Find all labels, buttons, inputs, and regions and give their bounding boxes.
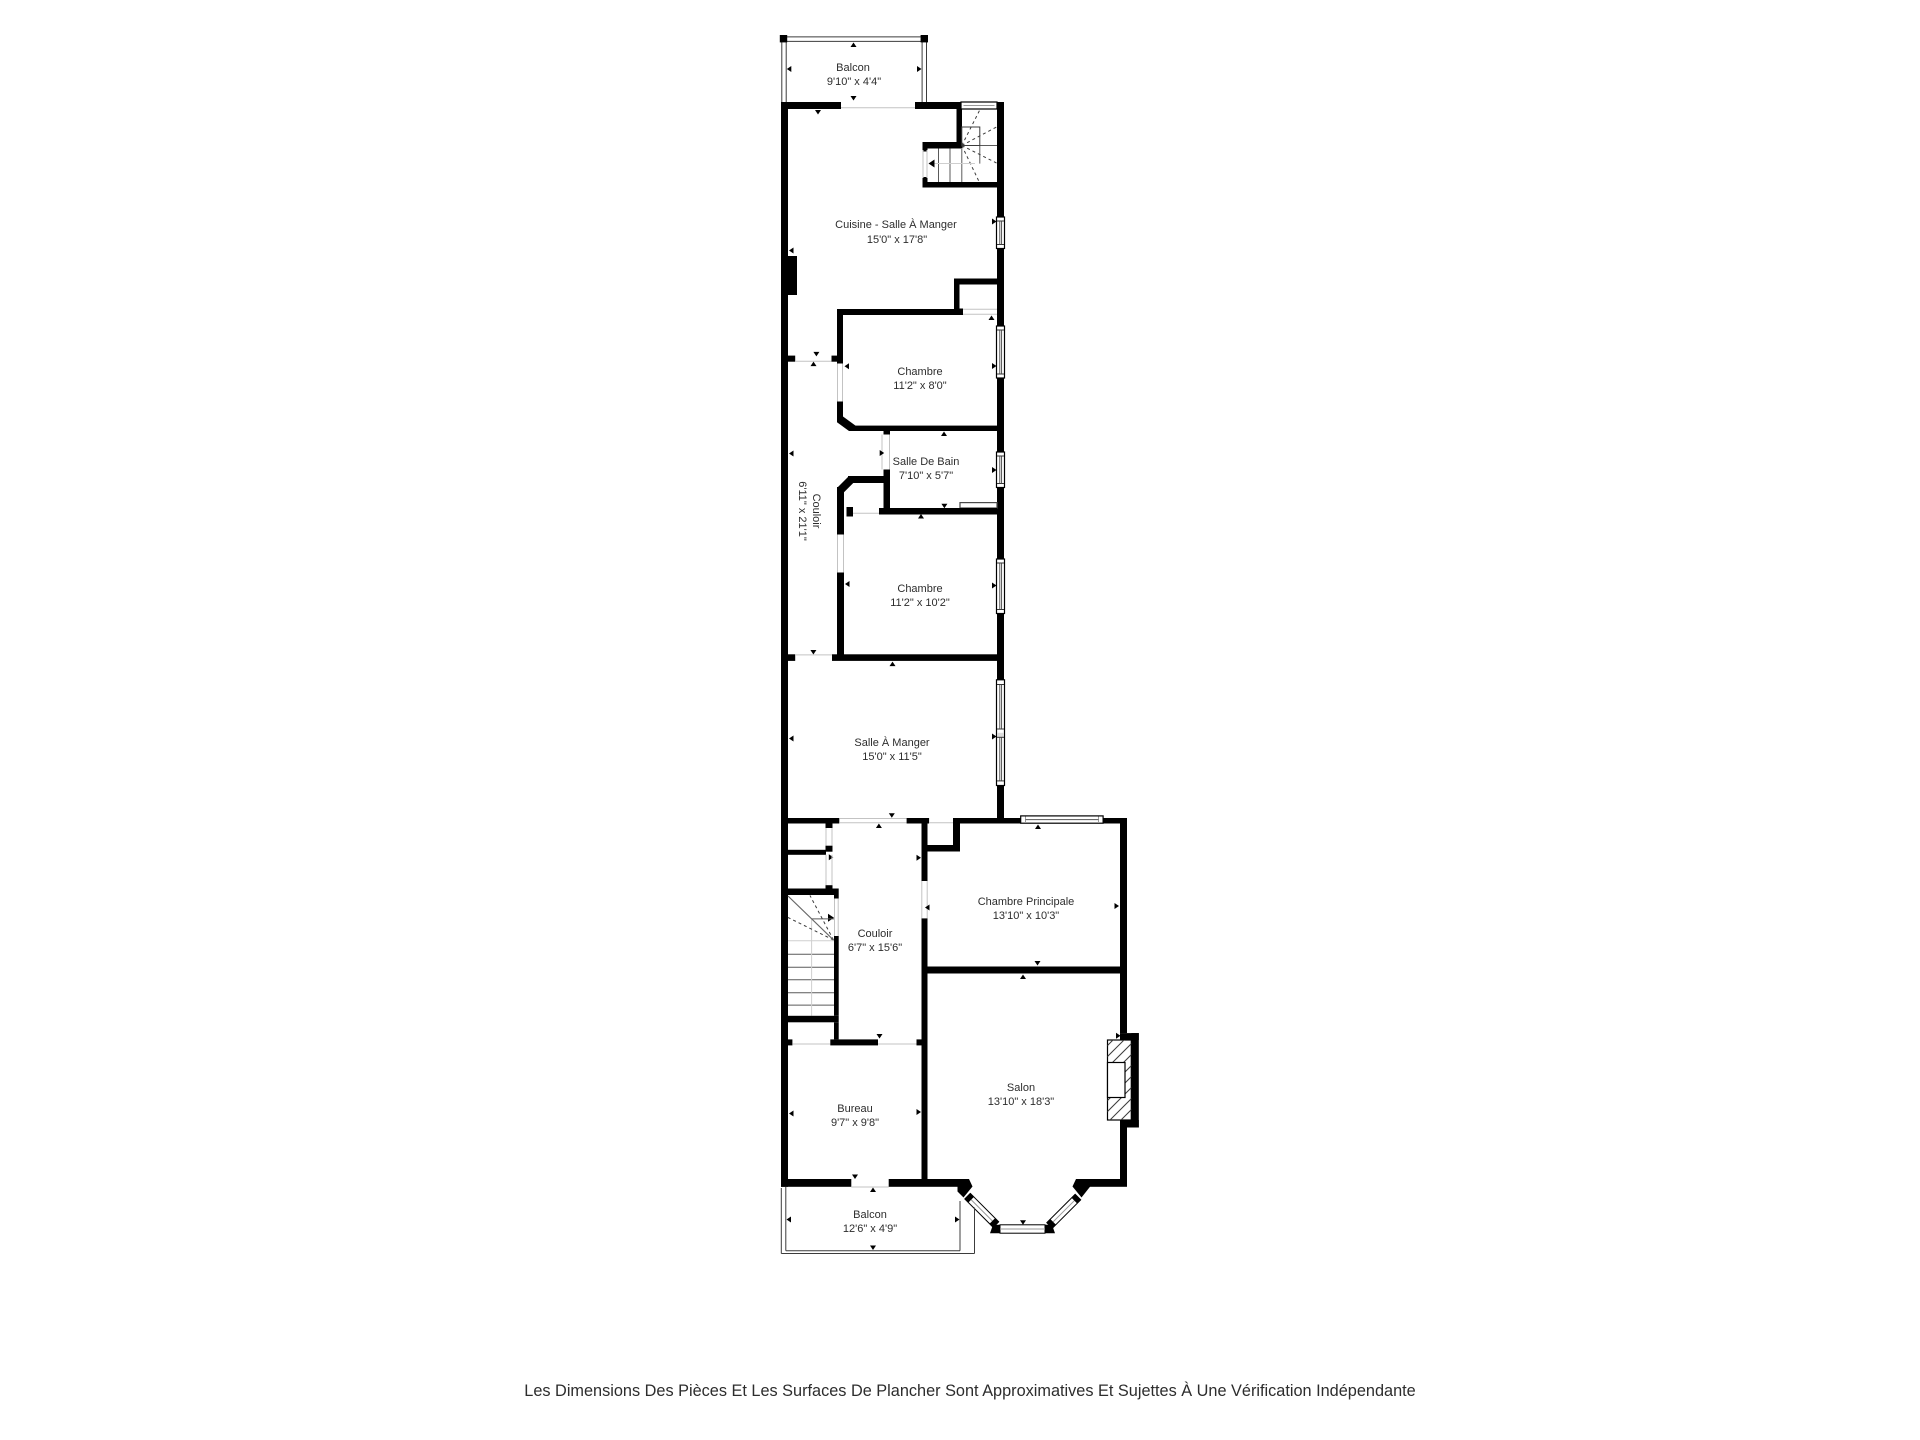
svg-text:Balcon: Balcon bbox=[836, 62, 870, 74]
svg-text:9'7" x 9'8": 9'7" x 9'8" bbox=[831, 1117, 879, 1129]
svg-text:6'11" x 21'1": 6'11" x 21'1" bbox=[796, 481, 808, 541]
svg-text:Les Dimensions Des Pièces Et L: Les Dimensions Des Pièces Et Les Surface… bbox=[524, 1381, 1415, 1400]
svg-text:6'7" x 15'6": 6'7" x 15'6" bbox=[848, 942, 902, 954]
svg-text:Couloir: Couloir bbox=[810, 494, 822, 529]
svg-text:Cuisine - Salle À Manger: Cuisine - Salle À Manger bbox=[835, 218, 957, 231]
svg-text:15'0" x 11'5": 15'0" x 11'5" bbox=[862, 751, 922, 763]
svg-text:11'2" x 8'0": 11'2" x 8'0" bbox=[893, 380, 946, 392]
svg-text:7'10" x 5'7": 7'10" x 5'7" bbox=[899, 470, 953, 482]
svg-text:Salle À Manger: Salle À Manger bbox=[854, 736, 930, 749]
svg-text:Couloir: Couloir bbox=[858, 928, 893, 940]
svg-text:Chambre: Chambre bbox=[897, 583, 942, 595]
svg-text:Chambre Principale: Chambre Principale bbox=[978, 896, 1075, 908]
svg-text:Salle De Bain: Salle De Bain bbox=[893, 456, 960, 468]
svg-text:13'10" x 18'3": 13'10" x 18'3" bbox=[988, 1096, 1055, 1108]
svg-text:Salon: Salon bbox=[1007, 1082, 1035, 1094]
svg-text:11'2" x 10'2": 11'2" x 10'2" bbox=[890, 597, 950, 609]
svg-text:13'10" x 10'3": 13'10" x 10'3" bbox=[993, 910, 1060, 922]
svg-text:Balcon: Balcon bbox=[853, 1209, 887, 1221]
svg-text:Chambre: Chambre bbox=[897, 366, 942, 378]
svg-text:12'6" x 4'9": 12'6" x 4'9" bbox=[843, 1223, 897, 1235]
svg-text:Bureau: Bureau bbox=[837, 1103, 872, 1115]
svg-text:9'10" x 4'4": 9'10" x 4'4" bbox=[827, 76, 881, 88]
svg-text:15'0" x 17'8": 15'0" x 17'8" bbox=[867, 234, 927, 246]
